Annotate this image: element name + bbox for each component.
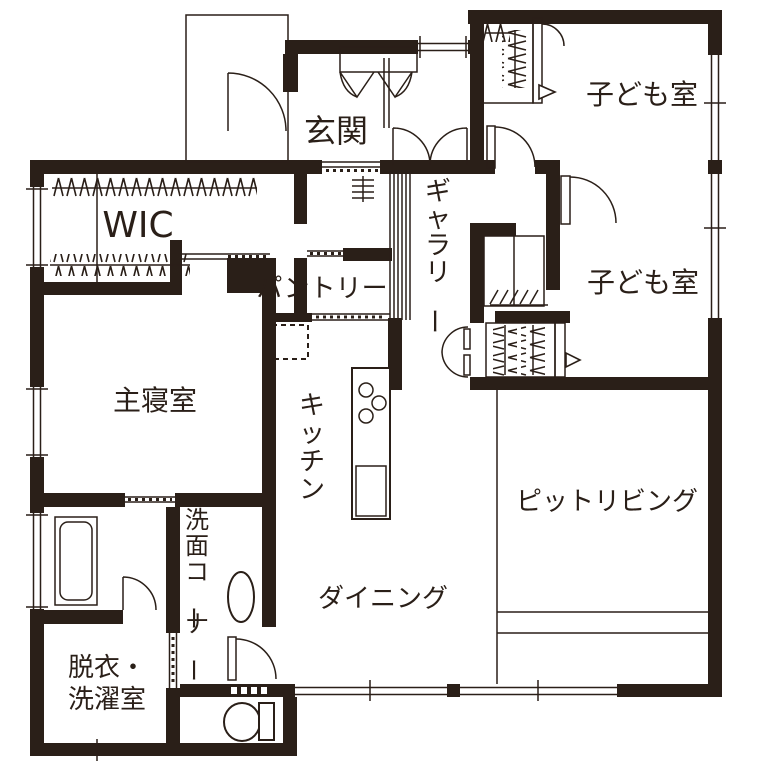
room-label-gallery: ギャラリー <box>418 177 451 334</box>
wash-basin <box>228 572 254 622</box>
kitchen-island <box>352 368 390 519</box>
pit-living-step <box>497 390 708 684</box>
window-kids1-right <box>704 55 726 160</box>
window-bedroom-left <box>26 387 48 457</box>
hall-double-door <box>393 128 467 165</box>
room-label-genkan: 玄関 <box>304 112 368 150</box>
closet-open-arrow <box>566 353 580 367</box>
room-label-pit-living: ピットリビング <box>516 487 698 517</box>
bath-door <box>123 577 156 610</box>
louver-screen <box>390 172 410 320</box>
room-label-bedroom: 主寝室 <box>113 384 197 417</box>
entrance-porch <box>186 15 288 162</box>
window-bath-left <box>26 513 48 609</box>
room-label-pantry: パントリー <box>256 274 387 304</box>
window-genkan-top <box>418 36 468 58</box>
kids2-mid-closet <box>484 236 548 306</box>
room-label-kitchen: キッチン <box>299 391 325 505</box>
kids1-closet <box>483 18 555 103</box>
sliding-door-bedroom-top <box>182 254 270 259</box>
display-niche <box>352 176 374 202</box>
window-wic-left <box>26 187 48 267</box>
room-label-laundry-line1: 脱衣・ <box>68 653 146 683</box>
refrigerator-space <box>272 325 308 359</box>
sliding-door-laundry-wash <box>166 633 180 688</box>
genkan-step-line <box>322 162 380 171</box>
room-label-wic: WIC <box>102 205 173 246</box>
sliding-counter-pantry-bottom <box>312 314 390 320</box>
genkan-hall-partition <box>384 58 389 128</box>
kids2-closet-double-door <box>442 327 470 377</box>
kids2-lower-closet <box>486 323 580 377</box>
sliding-door-bedroom-bath <box>125 493 175 507</box>
window-kids2-right <box>704 174 726 318</box>
bathtub <box>55 517 97 605</box>
entrance-door <box>228 73 286 131</box>
room-label-wash-corner: 洗面コーナー <box>179 506 209 682</box>
kids-divider-door <box>561 176 616 224</box>
floor-plan-page: 玄関 WIC パントリー ギャラリー 子ども室 子ども室 主寝室 キッチン ピッ… <box>0 0 768 768</box>
toilet <box>224 703 274 741</box>
room-label-kids1: 子ども室 <box>586 78 698 111</box>
room-label-kids2: 子ども室 <box>587 266 699 299</box>
room-label-laundry-line2: 洗濯室 <box>68 685 146 715</box>
wash-corner-door <box>228 637 276 680</box>
room-label-dining: ダイニング <box>318 584 448 614</box>
kids1-closet-door <box>542 24 564 46</box>
closet-open-arrow <box>539 85 555 99</box>
sliding-door-pantry-top <box>307 251 345 256</box>
floor-plan: 玄関 WIC パントリー ギャラリー 子ども室 子ども室 主寝室 キッチン ピッ… <box>0 0 768 768</box>
window-living-bottom <box>460 680 617 701</box>
shoe-cabinet <box>340 47 417 97</box>
window-dining-bottom <box>295 680 447 701</box>
